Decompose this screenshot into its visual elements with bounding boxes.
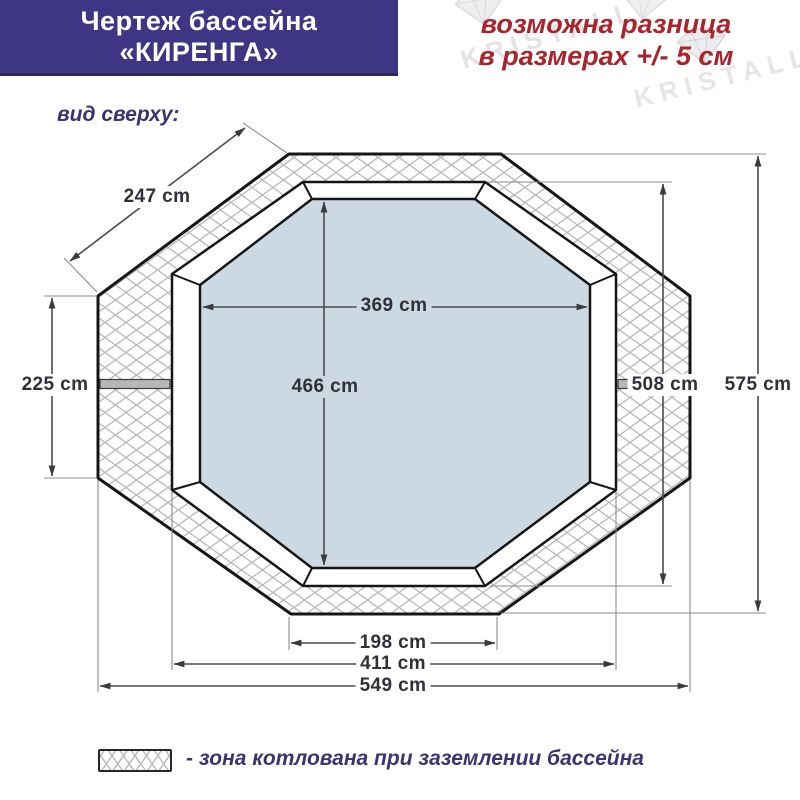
tolerance-note: возможна разница в размерах +/- 5 см — [438, 8, 774, 72]
tolerance-note-line1: возможна разница — [438, 8, 774, 40]
view-label: вид сверху: — [57, 103, 180, 127]
dimension-label-water-height: 466 cm — [288, 376, 363, 398]
dimension-label-pit-width: 549 cm — [356, 675, 431, 697]
dimension-label-bottom-edge: 198 cm — [356, 632, 431, 654]
title-banner: Чертеж бассейна «КИРЕНГА» — [0, 0, 398, 76]
dimension-label-bowl-height: 508 cm — [628, 374, 703, 396]
legend-hatch-swatch — [98, 749, 172, 772]
dimension-label-water-width: 369 cm — [357, 295, 432, 317]
dimension-label-pit-height: 575 cm — [721, 374, 796, 396]
dimension-label-side-edge: 225 cm — [18, 374, 93, 396]
dimension-label-diagonal-edge: 247 cm — [120, 186, 195, 208]
legend-text: - зона котлована при заземлении бассейна — [186, 747, 644, 771]
tolerance-note-line2: в размерах +/- 5 см — [438, 40, 774, 72]
seam-marker-left — [100, 380, 170, 389]
pool-drawing-page: KRISTALL KRISTALL Чертеж бассейна «КИРЕН… — [0, 0, 800, 800]
title-line2: «КИРЕНГА» — [119, 37, 278, 68]
water-octagon — [200, 199, 590, 568]
title-line1: Чертеж бассейна — [81, 6, 318, 37]
dimension-label-bowl-width: 411 cm — [356, 653, 430, 675]
